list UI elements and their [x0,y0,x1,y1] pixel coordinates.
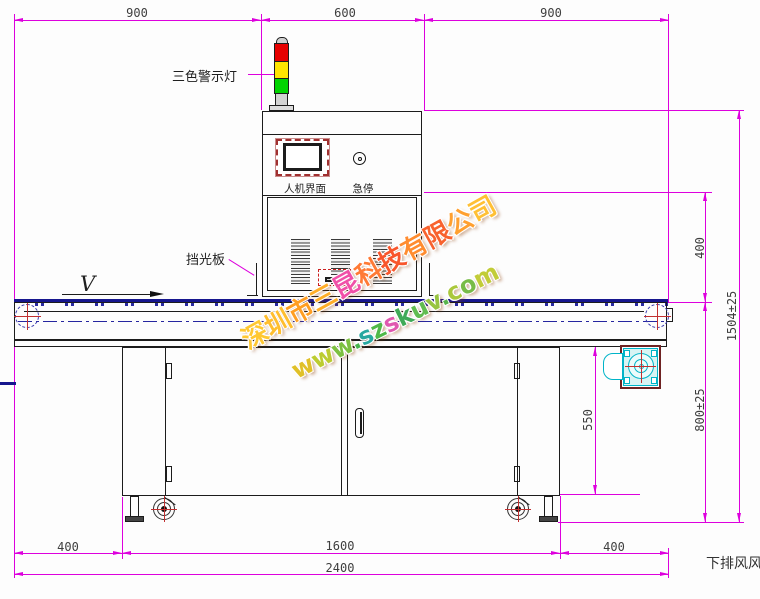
cabinet-door-gap-left [341,348,342,495]
dim-arrow [560,551,569,555]
dim-right-1504: 1504±25 [725,281,739,351]
door-handle-grip [360,412,362,434]
dim-arrow [703,293,707,302]
estop-label: 急停 [350,181,376,196]
fan-bolt [651,350,657,357]
ext-line-machine-top [424,110,744,111]
dim-line-550 [595,347,596,494]
dim-arrow [660,18,669,22]
ext-line-right [668,14,669,302]
caster-left-crosshair-v [164,496,165,522]
ext-line-ground [558,522,744,523]
belt-direction-arrow-head [150,291,164,297]
belt-direction-label: V [80,272,95,296]
door-hinge [514,466,520,482]
foot-pad-right [539,516,558,522]
dim-arrow [415,18,424,22]
dim-top-center: 600 [325,6,365,20]
light-shield-left-foot [247,295,258,296]
dim-right-800: 800±25 [693,380,707,440]
dim-right-400: 400 [693,218,707,278]
light-shield-right [429,263,430,296]
ext-line-head-left [261,14,262,110]
ext-line-cabinet-right [560,496,561,559]
tower-light-green [274,78,289,94]
dim-arrow [593,485,597,494]
hmi-label: 人机界面 [283,181,327,196]
dim-arrow [703,192,707,201]
dim-arrow [737,513,741,522]
door-hinge [514,363,520,379]
ext-line-panel-bottom [424,192,712,193]
conveyor-inner-line [24,311,644,312]
leveling-foot-right [544,496,553,517]
fan-inlet [603,353,623,380]
door-hinge [166,363,172,379]
dim-arrow [252,18,261,22]
door-hinge [166,466,172,482]
tower-light-label: 三色警示灯 [172,66,237,85]
belt-direction-arrow-line [62,294,152,295]
fan-bolt [651,377,657,384]
dim-top-left: 900 [117,6,157,20]
dim-bottom-1600: 1600 [315,539,365,553]
dim-line-1504 [739,110,740,522]
dim-arrow [551,551,560,555]
ext-line-left [14,14,15,578]
dim-bottom-400-left: 400 [48,540,88,554]
dim-arrow [703,513,707,522]
engineering-drawing: 900 600 900 400 1504±25 800±25 550 400 1… [0,0,760,599]
left-edge-mark [0,382,16,385]
fan-bolt [624,350,630,357]
conveyor-lower-flange [14,340,667,347]
dim-bottom-400-right: 400 [594,540,634,554]
dim-arrow [424,18,433,22]
dim-arrow [14,572,23,576]
dim-top-right: 900 [531,6,571,20]
dim-arrow [737,110,741,119]
light-shield-right-foot [429,295,440,296]
dim-bottom-2400: 2400 [315,561,365,575]
dim-right-550: 550 [581,400,595,440]
dim-arrow [660,551,669,555]
ext-line-head-right [424,14,425,110]
leader-tower-light [248,74,274,75]
light-shield-left [256,263,257,296]
ext-line-cabinet-left [122,497,123,559]
dim-arrow [261,18,270,22]
ext-line-cabinet-bottom [560,494,640,495]
leveling-foot-left [130,496,139,517]
vent-grille-1 [291,239,310,284]
tower-light-cap [276,37,288,44]
cabinet-door-gap-right [347,348,348,495]
dim-arrow [113,551,122,555]
dim-arrow [14,551,23,555]
pulley-left-crosshair-v [27,303,28,330]
fan-crosshair-h [625,366,656,367]
fan-bolt [624,377,630,384]
tower-light-yellow [274,61,289,79]
dim-arrow [703,302,707,311]
dim-arrow [660,572,669,576]
head-top-strip-line [263,134,421,135]
vent-slat-highlight [325,277,350,282]
leader-light-shield [228,259,254,276]
bottom-exhaust-label: 下排风风 [706,553,760,571]
hmi-screen[interactable] [283,143,322,171]
tower-light-pole [275,93,288,106]
foot-pad-left [125,516,144,522]
dim-arrow [122,551,131,555]
estop-button-inner [358,157,362,161]
pulley-right-crosshair-v [657,303,658,330]
vent-grille-3 [373,239,392,284]
tower-light-red [274,43,289,62]
dim-arrow [593,347,597,356]
caster-right-crosshair-v [518,496,519,522]
conveyor-centerline [18,321,666,322]
dim-line-top [14,20,669,21]
light-shield-label: 挡光板 [186,249,225,268]
dim-arrow [14,18,23,22]
